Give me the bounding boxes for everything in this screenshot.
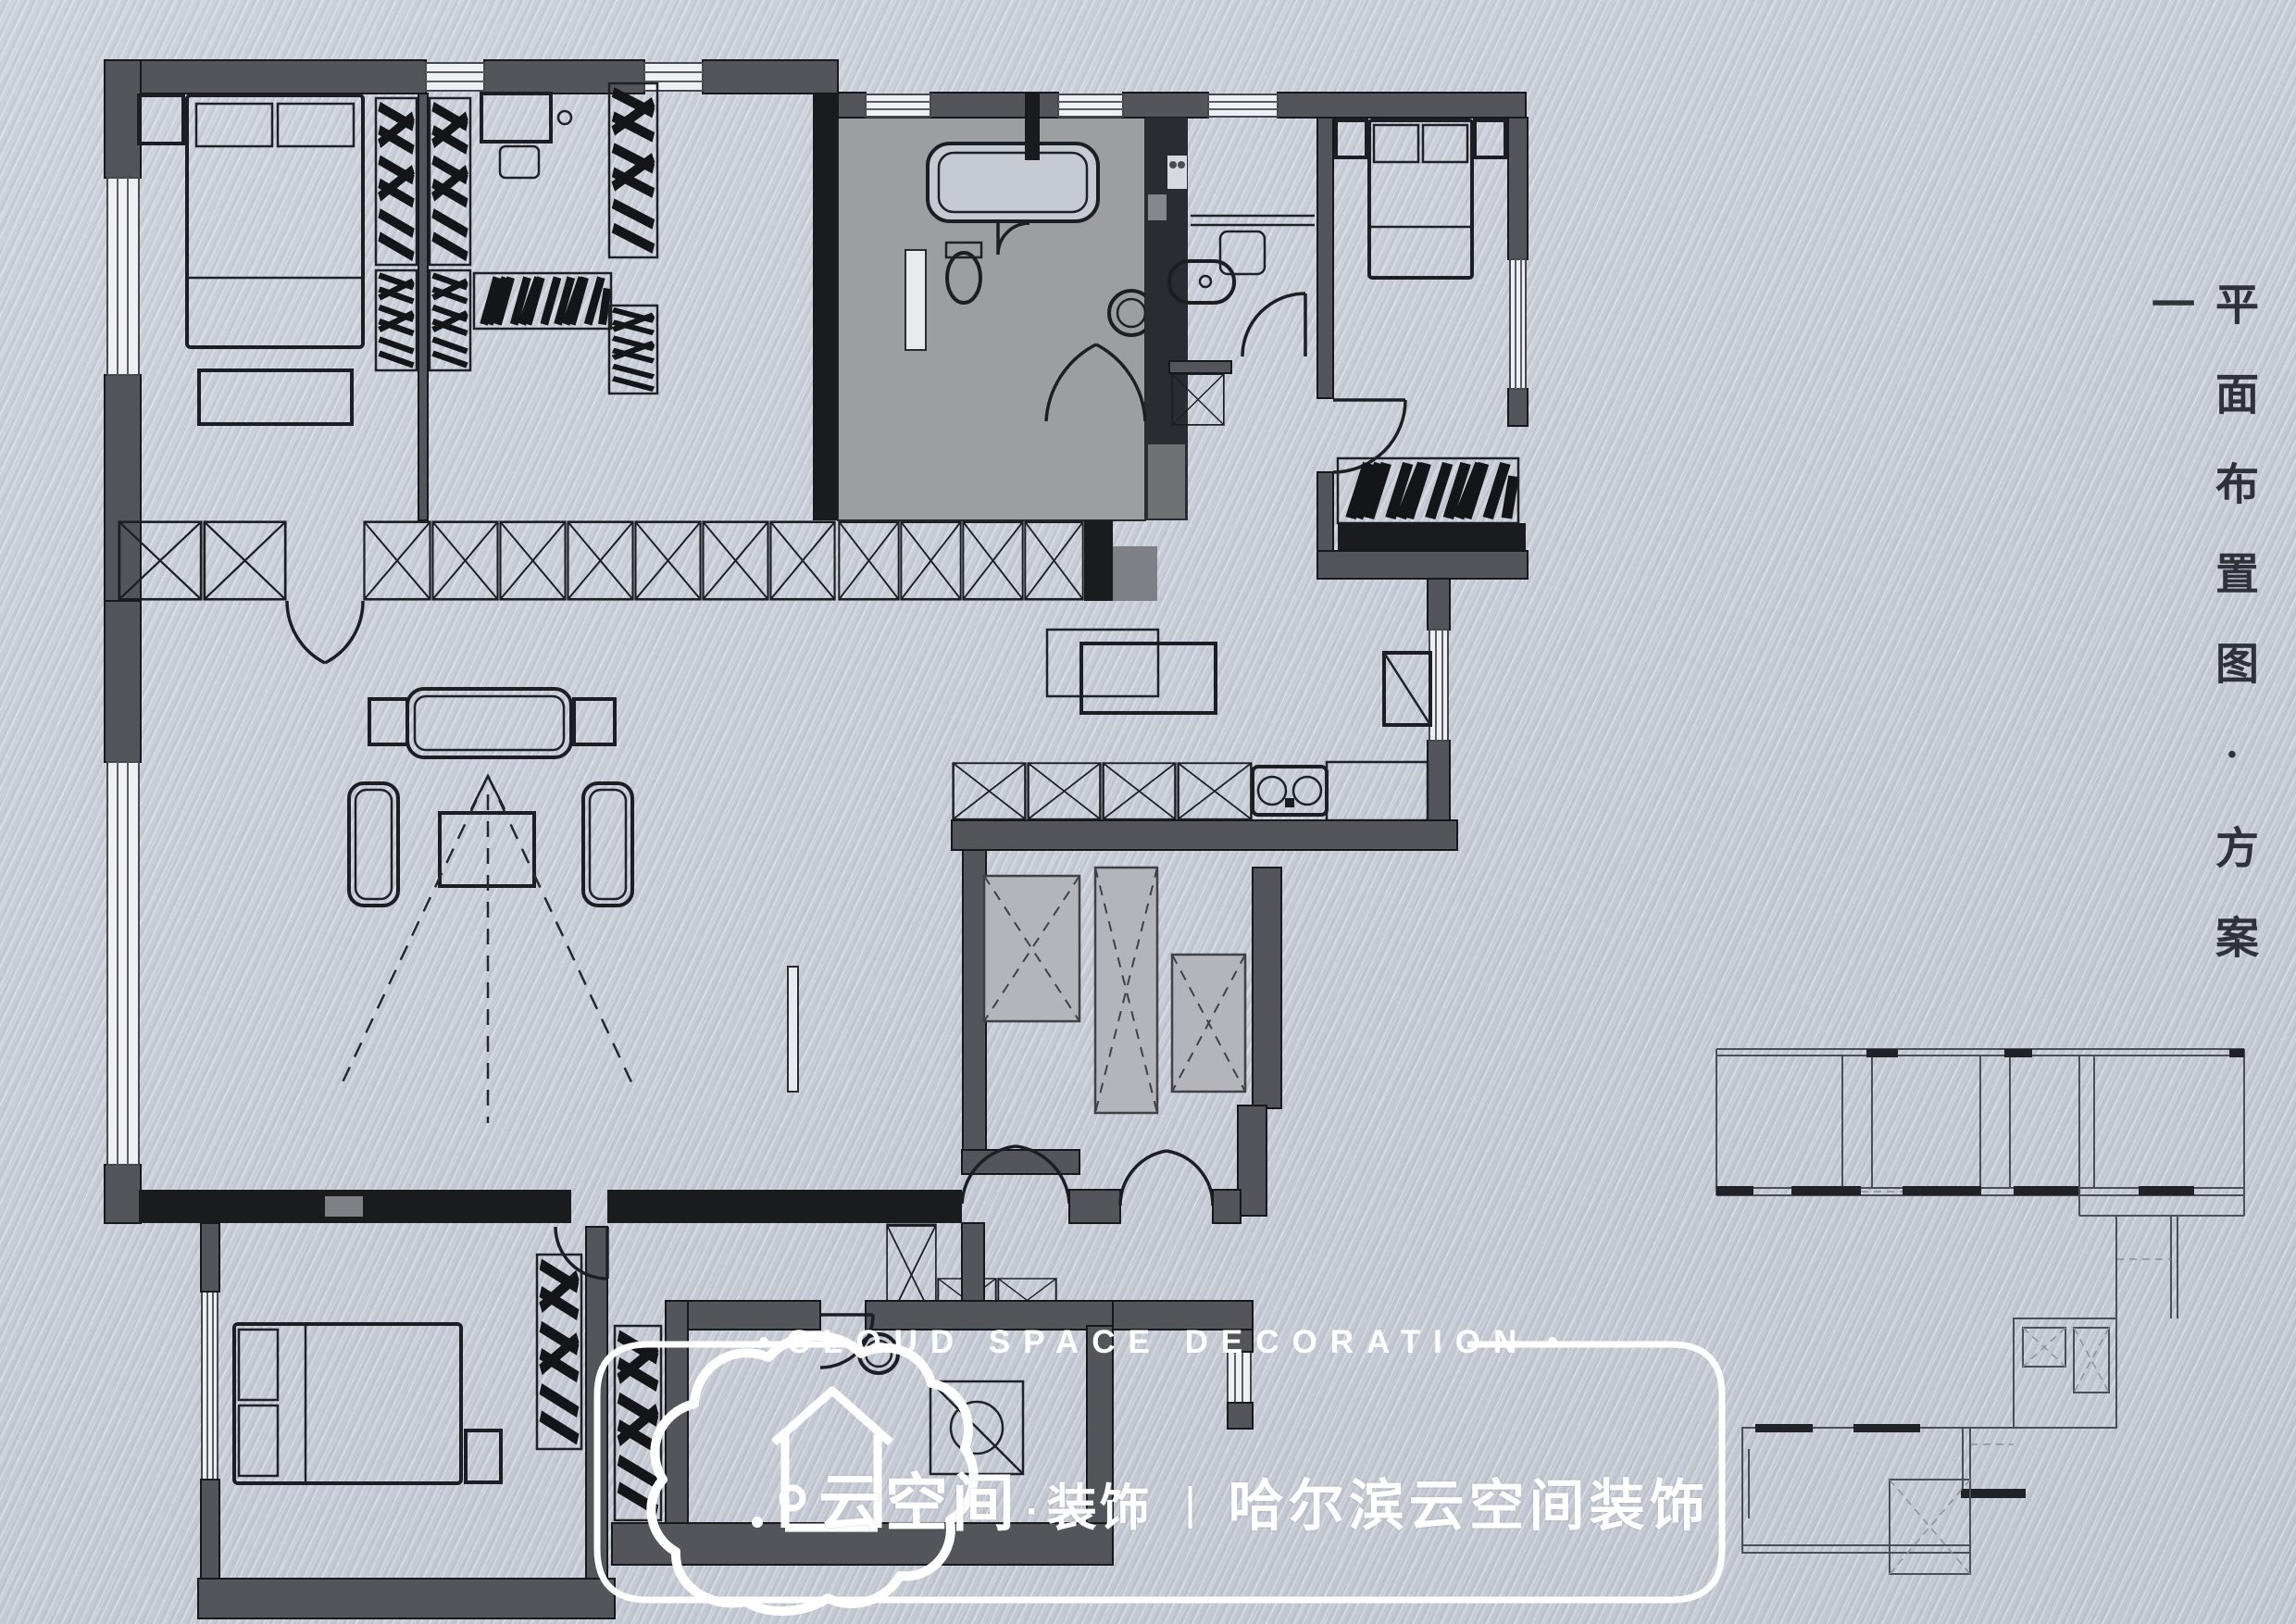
scheme-title-vertical: 平面布置图·方案一 — [2137, 281, 2265, 1078]
side-table-left — [369, 699, 407, 744]
closet-bath2 — [622, 1338, 655, 1509]
nightstand-bedroom3 — [466, 1430, 501, 1482]
living-room — [342, 689, 798, 1123]
watermark-top-label: ●CLOUD SPACE DECORATION● — [593, 1324, 1724, 1361]
bedroom-top-right — [1317, 118, 1528, 579]
window-top-3 — [866, 94, 930, 117]
bed-bedroom1 — [187, 95, 363, 347]
small-sink — [1167, 156, 1187, 189]
nightstand-bedroom2-right — [1475, 120, 1505, 157]
window-left-bedroom1 — [107, 178, 139, 375]
full-length-mirror — [788, 967, 798, 1092]
bed-bedroom2 — [1369, 120, 1472, 278]
tv-set — [325, 1196, 363, 1217]
label-bullet-right: ● — [1546, 1329, 1558, 1352]
nightstand-bedroom2-left — [1336, 120, 1366, 157]
window-bedroom2-right — [1510, 259, 1526, 389]
bed-bedroom3 — [234, 1324, 461, 1483]
counter-plain — [1327, 762, 1428, 820]
brand-divider: · — [1026, 1489, 1040, 1535]
wall-dressing-bath — [813, 94, 838, 520]
bath-partition — [905, 250, 926, 350]
bathtub — [928, 144, 1098, 221]
wardrobe-dressing-bottom — [485, 281, 607, 320]
window-top-2 — [644, 63, 703, 91]
dressing-room — [364, 83, 838, 599]
kitchen-south-wall — [952, 820, 1457, 850]
floorplan-presentation-canvas: 平面布置图·方案一 ●CLOUD SPACE DECORATION● 云空间 ·… — [0, 0, 2296, 1624]
bedroom2-south-wall — [1317, 551, 1528, 579]
gas-stove — [1253, 767, 1327, 815]
side-table-right — [574, 699, 615, 744]
nightstand-bedroom1 — [139, 95, 183, 144]
refrigerator — [1384, 653, 1430, 725]
bedroom3-south-wall — [198, 1579, 615, 1618]
door-bedroom2 — [1333, 400, 1405, 472]
window-left-living — [107, 762, 139, 1165]
armchair-left — [349, 783, 398, 906]
floorplan-drawing — [0, 0, 2296, 1624]
watermark-brand-line: 云空间 · 装饰 丨 哈尔滨云空间装饰 — [818, 1452, 1652, 1543]
wardrobe-dressing-right-upper — [617, 94, 650, 246]
company-english-name: CLOUD SPACE DECORATION — [787, 1324, 1530, 1360]
mini-structural-plan — [1716, 1049, 2244, 1574]
wardrobe-dressing-right-lower — [617, 311, 650, 389]
wardrobe-bedroom1-upper — [382, 108, 411, 255]
bedroom-top-left — [119, 94, 428, 663]
bedroom1-right-wall — [418, 94, 428, 520]
elevator-core — [962, 850, 1281, 1216]
window-bedroom3-left — [202, 1292, 218, 1480]
bedroom-bottom-left — [198, 1223, 615, 1618]
brand-name: 云空间 — [818, 1452, 1018, 1543]
window-top-1 — [426, 63, 484, 91]
window-top-5 — [1208, 94, 1278, 117]
company-chinese-name: 哈尔滨云空间装饰 — [1229, 1461, 1710, 1542]
brand-separator: 丨 — [1167, 1472, 1214, 1539]
wardrobe-bedroom1-lower — [382, 276, 411, 364]
wardrobe-bedroom2 — [1353, 468, 1514, 514]
armchair-right — [583, 783, 632, 906]
entry-closet-doors — [1120, 1151, 1213, 1206]
door-corridor — [1242, 294, 1305, 356]
label-bullet-left: ● — [757, 1329, 769, 1352]
sofa — [407, 689, 571, 757]
bench-bedroom1 — [199, 370, 352, 424]
vanity-dressing — [481, 94, 571, 178]
wardrobe-bedroom3 — [543, 1267, 575, 1438]
kitchen-dining — [952, 630, 1457, 850]
window-top-4 — [1058, 94, 1123, 117]
door-bedroom1 — [287, 601, 363, 663]
brand-suffix: 装饰 — [1047, 1467, 1153, 1540]
corridor — [1169, 216, 1315, 425]
dining-table — [1047, 630, 1216, 713]
main-floorplan — [105, 60, 1528, 1618]
